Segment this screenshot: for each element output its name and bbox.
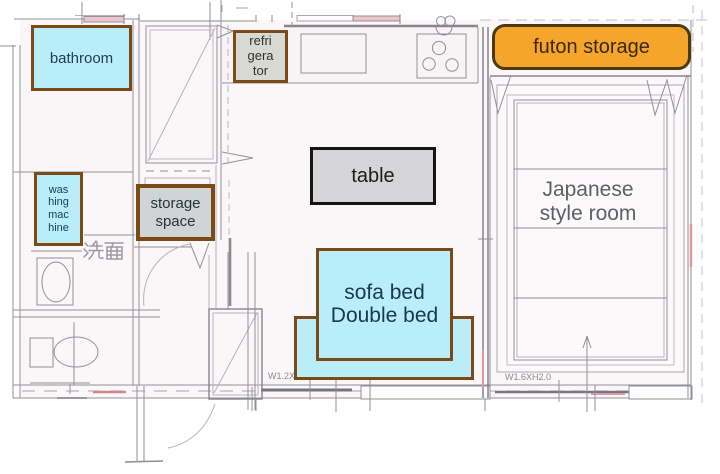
svg-text:W1.6XH2.0: W1.6XH2.0: [505, 372, 551, 382]
svg-text:W1.2X: W1.2X: [268, 371, 295, 381]
